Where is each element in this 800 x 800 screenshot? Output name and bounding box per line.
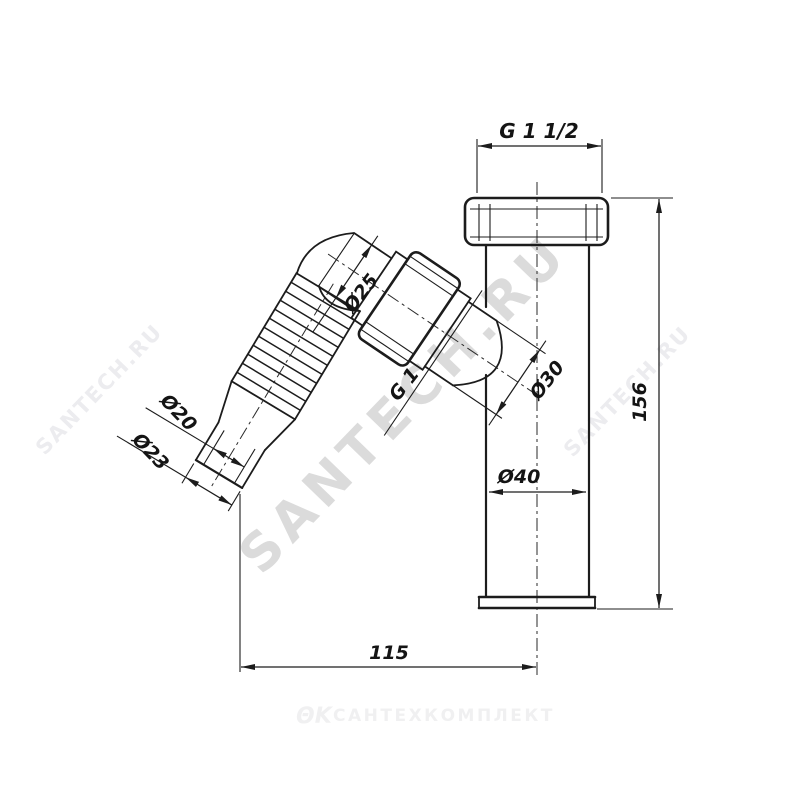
footer-brand-logo-icon: ΘΚ [296, 704, 334, 729]
footer-brand-watermark: САНТЕХКОМПЛЕКТ [333, 706, 555, 726]
label-total-height: 156 [629, 382, 651, 422]
dim-line-inlet-inner-diameter [213, 448, 244, 467]
label-inlet-outer-diameter: Ø23 [127, 428, 173, 475]
dimension-top-thread: G 1 1/2 [477, 119, 602, 193]
watermark-diagonal-large: SANTECH.RU [228, 223, 581, 585]
inlet-end-face [196, 460, 242, 488]
pipe-fitting-drawing: SANTECH.RU SANTECH.RU SANTECH.RU ΘΚ САНТ… [0, 0, 800, 800]
label-elbow-diameter: Ø25 [339, 270, 383, 318]
label-top-thread: G 1 1/2 [499, 119, 578, 143]
dim-line-inlet-outer-diameter [186, 477, 232, 505]
watermark-diagonal-small-right: SANTECH.RU [559, 321, 696, 461]
label-branch-outer-diameter: Ø30 [525, 357, 569, 405]
dimension-layer: G 1 1/2 156 Ø40 115 Ø25 G 1 Ø30 Ø20 Ø23 [127, 119, 673, 672]
label-inlet-inner-diameter: Ø20 [155, 389, 201, 436]
label-total-width: 115 [369, 642, 409, 664]
label-pipe-diameter: Ø40 [497, 466, 541, 488]
technical-drawing-page: SANTECH.RU SANTECH.RU SANTECH.RU ΘΚ САНТ… [0, 0, 800, 800]
